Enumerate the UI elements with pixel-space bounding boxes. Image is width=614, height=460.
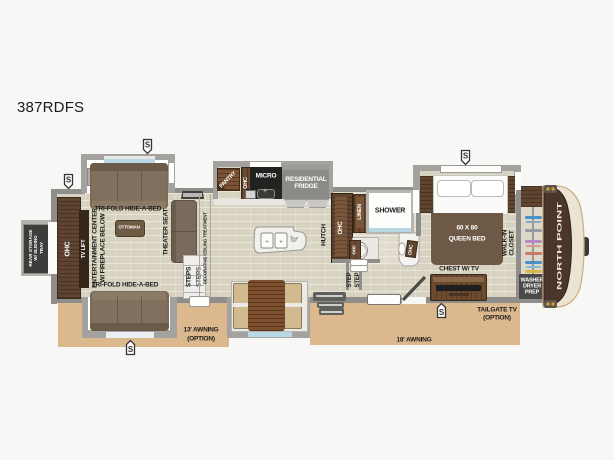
svg-text:S: S (145, 141, 151, 150)
svg-text:S: S (128, 345, 134, 354)
svg-text:S: S (439, 308, 445, 317)
svg-text:+: + (279, 240, 283, 246)
svg-text:+: + (265, 240, 269, 246)
svg-text:S: S (66, 176, 72, 185)
svg-text:NORTH POINT: NORTH POINT (557, 200, 564, 290)
svg-text:S: S (463, 152, 469, 161)
